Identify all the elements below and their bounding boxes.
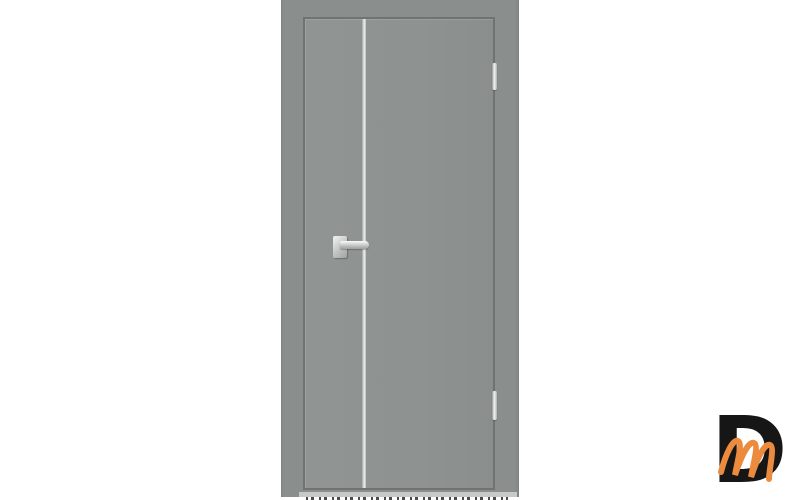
vertical-molding-strip (362, 19, 366, 488)
door-leaf (303, 17, 495, 490)
door-frame (281, 0, 519, 497)
dm-watermark-logo: D (711, 415, 791, 487)
dm-logo-svg: D (711, 415, 791, 487)
door-handle-lever (340, 241, 369, 249)
product-photo: D (0, 0, 800, 500)
hinge-bottom (492, 391, 497, 420)
hinge-top (492, 63, 497, 90)
